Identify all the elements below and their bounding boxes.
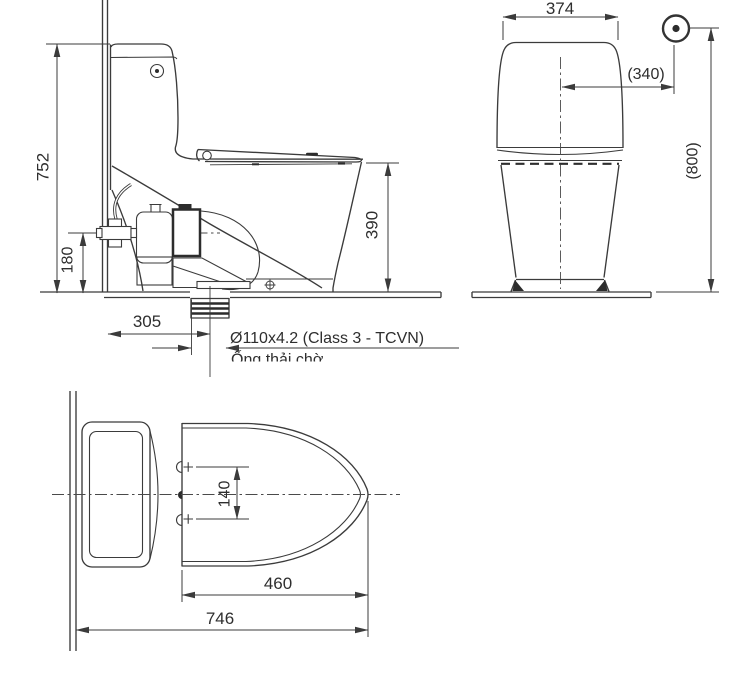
supply-valve-knob-right: [131, 229, 137, 238]
dim-746-label: 746: [206, 609, 234, 628]
floor-slab: [40, 292, 441, 298]
rim-tick-1: [252, 163, 259, 165]
rim-tick-2: [338, 163, 345, 165]
toilet-dimension-drawing: 752 180 390 305 Ø110x4.2 (Class 3 - TCVN…: [0, 0, 747, 676]
front-rim-curve: [497, 150, 623, 155]
seat-hinge-circle: [203, 151, 212, 160]
dim-180-label: 180: [60, 247, 77, 274]
supply-point-dot: [672, 25, 679, 32]
fill-valve-nub: [150, 205, 162, 213]
seat-mark: [306, 153, 318, 156]
dim-374-label: 374: [546, 0, 574, 18]
front-base: [511, 280, 609, 292]
bolt-cap-cross: [265, 280, 276, 291]
dim-340-label: (340): [627, 66, 664, 83]
hinge-hole-cross-bottom: [184, 514, 194, 523]
dim-752-label: 752: [34, 153, 53, 181]
tank-lid-line: [111, 57, 177, 59]
dim-140-label: 140: [217, 481, 234, 508]
supply-valve-h: [100, 227, 131, 240]
drawing-canvas: 752 180 390 305 Ø110x4.2 (Class 3 - TCVN…: [0, 0, 747, 676]
flush-button-dot: [155, 69, 159, 73]
outlet-flange: [197, 282, 250, 289]
dim-374-ext: [503, 21, 618, 40]
bowl-front-edge: [333, 162, 362, 292]
dim-460-label: 460: [264, 574, 292, 593]
seat-lid: [197, 150, 362, 163]
plan-tank-bulge: [150, 431, 158, 559]
tank-outline: [111, 44, 363, 159]
dim-390-label: 390: [363, 211, 382, 239]
plan-wall-lines: [70, 391, 76, 651]
front-view: 374 (340) (800): [472, 0, 719, 298]
front-bowl-sides: [501, 165, 619, 278]
plan-view: 140 460 746: [52, 391, 400, 651]
fill-valve-body: [137, 212, 173, 263]
front-tank-outline: [497, 43, 623, 149]
flush-valve-body: [173, 210, 200, 257]
pipe-name-label: Ống thải chờ: [231, 349, 324, 369]
side-view: 752 180 390 305 Ø110x4.2 (Class 3 - TCVN…: [34, 0, 460, 377]
supply-valve-knob-left: [97, 229, 103, 238]
dim-800-label: (800): [685, 142, 702, 179]
dim-305-label: 305: [133, 312, 161, 331]
pipe-spec-label: Ø110x4.2 (Class 3 - TCVN): [230, 330, 424, 347]
hinge-hole-cross-top: [184, 462, 194, 471]
front-floor-slab: [472, 292, 651, 298]
flush-valve-tab: [179, 204, 192, 210]
rim-under-seat: [210, 164, 352, 165]
plan-hinge-pin: [178, 491, 182, 499]
supply-hose-icon: [115, 185, 131, 220]
